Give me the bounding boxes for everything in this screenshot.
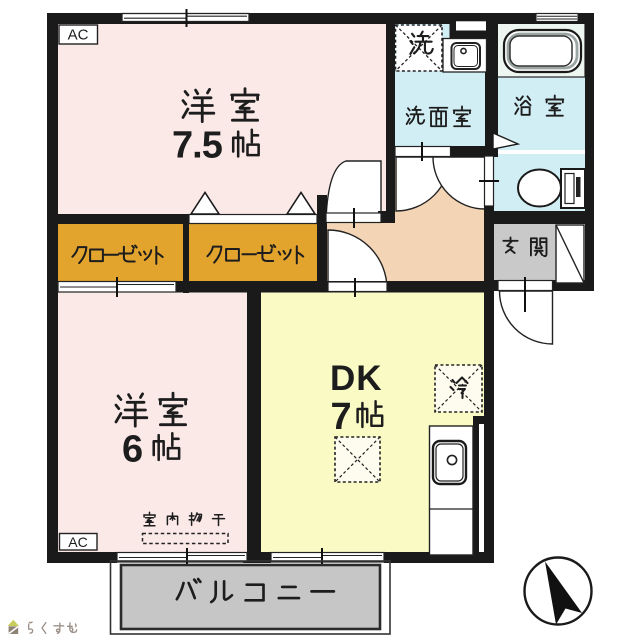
- svg-text:AC: AC: [68, 27, 89, 44]
- svg-text:7: 7: [331, 396, 352, 438]
- svg-text:DK: DK: [330, 359, 383, 398]
- svg-text:7.5: 7.5: [172, 125, 223, 167]
- svg-text:6: 6: [122, 429, 143, 471]
- svg-text:AC: AC: [68, 534, 87, 550]
